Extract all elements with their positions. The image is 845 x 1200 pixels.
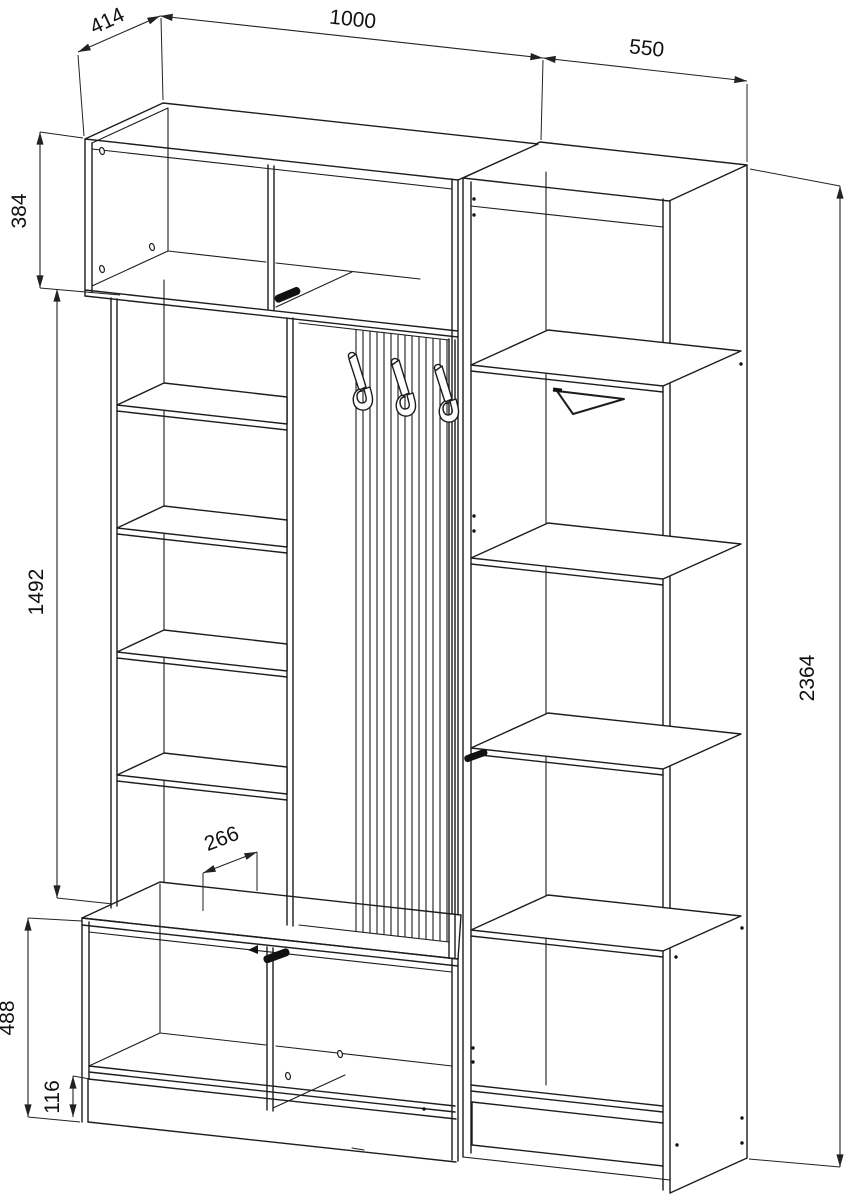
dimension-total-height: 2364	[749, 169, 840, 1167]
slat-lines	[356, 330, 447, 942]
column-shelf-3	[117, 630, 287, 677]
column-shelf-1	[117, 383, 287, 430]
dim-label-top-cabinet-height: 384	[8, 193, 31, 228]
right-cabinet-shelf-3	[471, 713, 741, 775]
furniture-technical-drawing-page: 414 1000 550 384 1492	[0, 0, 845, 1200]
bench-top-face	[82, 882, 461, 959]
bottom-cabinet	[82, 882, 461, 1162]
dim-label-right-width: 550	[628, 35, 665, 62]
hook-panel	[299, 323, 459, 958]
right-cabinet-shelf-4	[471, 895, 741, 957]
hallway-wardrobe-drawing: 414 1000 550 384 1492	[0, 0, 845, 1200]
column-shelf-4	[117, 753, 287, 800]
dimension-middle-height: 1492	[25, 289, 113, 904]
dim-label-bottom-cabinet-height: 488	[0, 1000, 19, 1035]
dimension-right-width: 550	[541, 35, 747, 162]
dimension-left-width: 1000	[160, 6, 543, 58]
column-shelf-2	[117, 506, 287, 553]
right-cabinet-shelf-1	[471, 330, 741, 392]
dim-label-hook-panel-depth: 266	[201, 822, 242, 856]
coat-hook-1	[348, 352, 372, 410]
shelf-column	[111, 280, 293, 926]
dim-label-middle-height: 1492	[25, 569, 48, 616]
left-top-cabinet	[85, 18, 538, 1161]
dim-label-total-height: 2364	[796, 654, 819, 701]
dim-label-depth: 414	[87, 3, 129, 39]
clothes-rail-bracket	[553, 388, 624, 414]
right-cabinet	[463, 142, 747, 1193]
dim-label-left-width: 1000	[328, 6, 377, 34]
hinge-hardware-top	[273, 286, 301, 304]
dim-label-plinth-height: 116	[41, 1080, 64, 1113]
right-cabinet-shelf-2	[471, 523, 741, 585]
shelf-bracket-hardware	[463, 748, 488, 763]
